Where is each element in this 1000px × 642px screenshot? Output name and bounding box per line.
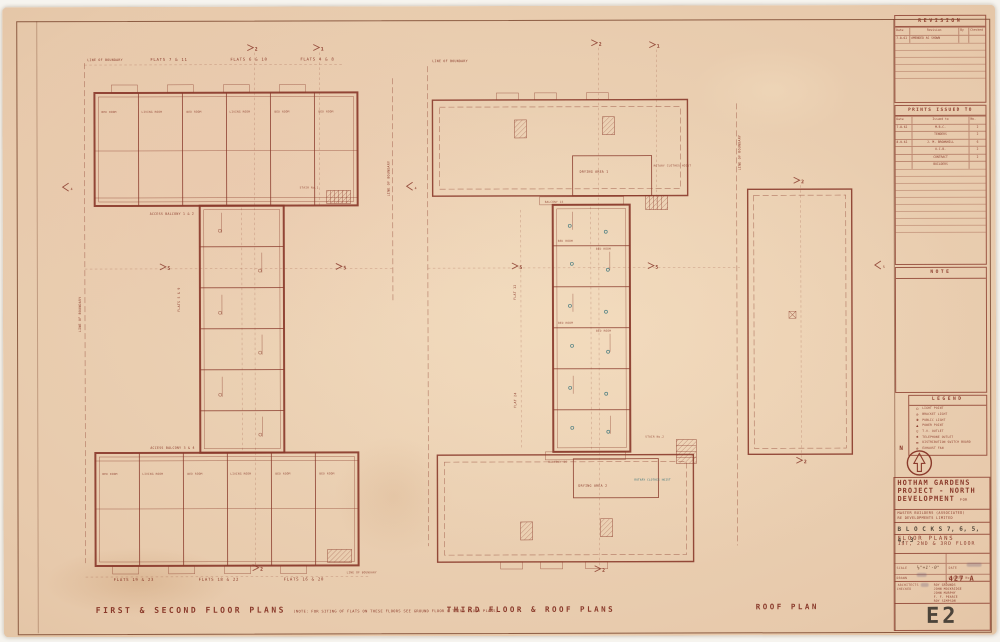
revision-col: By — [959, 28, 969, 35]
section-marker: 5 — [167, 266, 170, 272]
section-marker: 2 — [602, 568, 605, 574]
project-line: DEVELOPMENT — [897, 495, 954, 503]
section-marker: 5 — [519, 265, 522, 271]
room-label: BED ROOM — [102, 472, 117, 476]
balcony-label: BALCONY 15 — [545, 200, 564, 204]
legend-label: PUBLIC LIGHT — [922, 418, 945, 422]
stair-label: STAIR No.2 — [645, 435, 664, 439]
prints-col: Date — [895, 117, 912, 124]
legend-title: LEGEND — [909, 396, 986, 406]
prints-cell: 6 — [970, 139, 986, 146]
legend-label: POWER POINT — [922, 423, 943, 427]
room-label: BED ROOM — [187, 472, 202, 476]
room-label: BED ROOM — [274, 110, 289, 114]
flat-label: FLAT 24 — [513, 392, 517, 408]
tv-outlet-icon: ▽ — [912, 428, 922, 433]
project-line: HOTHAM GARDENS — [897, 479, 970, 487]
client-line: RE DEVELOPMENTS LIMITED — [898, 516, 953, 520]
bracket-light-icon: ⊙ — [912, 411, 922, 416]
blocks-line: B L O C K S 7, 6, 5, 4, 3 — [895, 523, 990, 535]
first-second-floor-plan: LINE OF BOUNDARY LINE OF BOUNDARY LINE O… — [77, 52, 395, 582]
section-marker: 1 — [657, 44, 660, 50]
prints-cell: 8.9.61 — [896, 139, 913, 146]
public-light-icon: ◑ — [912, 417, 922, 422]
note-box: NOTE — [895, 267, 987, 393]
power-point-icon: ▲ — [912, 423, 922, 428]
section-marker: 1 — [321, 46, 324, 52]
revision-cell: AMENDED AS SHOWN — [910, 36, 959, 43]
sheet-number: E2 — [895, 604, 990, 630]
flats-label: FLATS 4 & 8 — [300, 56, 334, 61]
plans-drawing: LINE OF BOUNDARY LINE OF BOUNDARY LINE O… — [2, 5, 997, 638]
section-marker: 2 — [260, 567, 263, 573]
date-value-smudge — [967, 562, 982, 566]
legend-label: TELEPHONE OUTLET — [922, 435, 953, 439]
prints-cell: CONTRACT — [913, 154, 970, 161]
grid-flag: 4 — [415, 186, 417, 190]
section-marker: 2 — [255, 47, 258, 53]
access-balcony-label: ACCESS BALCONY 1 & 2 — [150, 212, 194, 216]
north-label: N — [899, 445, 903, 452]
prints-cell: 2 — [970, 132, 986, 139]
drawing-no-label: DRAWING No. — [949, 576, 972, 580]
room-label: BED ROOM — [101, 110, 116, 114]
flats-label: FLATS 16 & 20 — [284, 576, 324, 581]
boundary-label: LINE OF BOUNDARY — [387, 161, 391, 197]
plan-note-teal: ROTARY CLOTHES HOIST — [634, 478, 671, 482]
subtitle-line: 1ST, 2ND & 3RD FLOOR — [898, 542, 987, 547]
section-marker: 2 — [599, 42, 602, 48]
room-label: BED ROOM — [596, 247, 611, 251]
telephone-outlet-icon: ✱ — [912, 434, 922, 439]
grid-flag: 5 — [883, 265, 885, 269]
prints-cell — [896, 147, 913, 154]
prints-cell: J. M. BROWNHILL — [913, 139, 970, 146]
revision-col: Revision — [910, 28, 959, 35]
room-label: BED ROOM — [558, 239, 573, 243]
room-label: BED ROOM — [186, 110, 201, 114]
flats-label: FLATS 19 & 23 — [114, 577, 154, 582]
drawn-value-smudge — [917, 573, 927, 577]
north-compass: N — [897, 445, 937, 477]
for-word: FOR — [960, 498, 968, 502]
prints-cell: M.B.C. — [912, 124, 969, 131]
drawing-title: FLOOR PLANS 1ST, 2ND & 3RD FLOOR — [895, 535, 990, 554]
revision-title: REVISION — [895, 16, 985, 27]
prints-col: No. — [969, 117, 985, 124]
flats-label: FLATS 6 & 10 — [230, 57, 267, 62]
flats-label: FLATS 7 & 11 — [150, 57, 187, 62]
prints-cell: 2 — [970, 154, 986, 161]
legend-label: T.V. OUTLET — [922, 429, 943, 433]
prints-cell: A.C.B. — [913, 147, 970, 154]
boundary-label: LINE OF BOUNDARY — [87, 58, 123, 62]
revision-col: Checked — [969, 28, 985, 35]
revision-table: REVISION Date Revision By Checked 7.8.61… — [894, 15, 986, 103]
empty-row — [895, 78, 985, 85]
prints-cell: 7.8.61 — [895, 124, 912, 131]
section-marker: 2 — [804, 459, 807, 465]
room-label: LIVING ROOM — [229, 110, 250, 114]
flat-label: FLAT 12 — [513, 284, 517, 300]
room-label: BED ROOM — [275, 472, 290, 476]
section-marker: 2 — [801, 179, 804, 185]
north-arrow-icon — [905, 449, 933, 477]
scale-label: SCALE — [897, 566, 908, 570]
grid-flag: 4 — [71, 187, 73, 191]
stair-label: STAIR No.1 — [300, 185, 319, 189]
project-line: PROJECT - NORTH — [897, 487, 975, 495]
boundary-label: LINE OF BOUNDARY — [738, 135, 742, 171]
legend-label: BRACKET LIGHT — [922, 412, 947, 416]
architects-row: ARCHITECTS ROY GROUNDS JOHN MOCKRIDGE JO… — [895, 582, 990, 604]
client-line: MASTER BUILDERS (ASSOCIATED) — [897, 511, 964, 515]
prints-cell: TENDERS — [913, 132, 970, 139]
title-block: HOTHAM GARDENS PROJECT - NORTH DEVELOPME… — [893, 477, 990, 631]
prints-issued-table: PRINTS ISSUED TO Date Issued to No. 7.8.… — [894, 105, 986, 265]
drying-area-label: DRYING AREA 2 — [578, 484, 607, 488]
caption-left: FIRST & SECOND FLOOR PLANS (NOTE: FOR SI… — [96, 605, 499, 615]
room-label: LIVING ROOM — [230, 472, 251, 476]
section-markers: 2 1 5 5 2 2 1 5 5 2 2 2 4 4 5 — [62, 39, 886, 575]
architect-name: ROY SIMPSON — [934, 599, 962, 603]
third-floor-roof-plan: LINE OF BOUNDARY LINE OF BOUNDARY DRYING… — [427, 47, 801, 570]
roof-plan — [748, 189, 853, 454]
boundary-label: LINE OF BOUNDARY — [347, 570, 377, 574]
paper: LINE OF BOUNDARY LINE OF BOUNDARY LINE O… — [2, 5, 997, 638]
revision-col: Date — [895, 28, 910, 35]
plan-note: ROTARY CLOTHES HOIST — [654, 163, 692, 167]
room-label: BED ROOM — [596, 329, 611, 333]
revision-cell — [969, 36, 985, 43]
access-balcony-label: ACCESS BALCONY 3 & 4 — [150, 446, 194, 450]
caption-left-title: FIRST & SECOND FLOOR PLANS — [96, 606, 286, 615]
caption-right: ROOF PLAN — [756, 602, 819, 611]
prints-cell: BUILDERS — [913, 162, 970, 169]
prints-title: PRINTS ISSUED TO — [895, 106, 985, 116]
boundary-label: LINE OF BOUNDARY — [432, 59, 468, 63]
caption-middle: THIRD FLOOR & ROOF PLANS — [447, 605, 615, 614]
boundary-label: LINE OF BOUNDARY — [78, 297, 82, 333]
date-label: DATE — [949, 566, 957, 570]
prints-cell — [896, 154, 913, 161]
scanned-drawing-sheet: LINE OF BOUNDARY LINE OF BOUNDARY LINE O… — [0, 0, 1000, 642]
prints-cell — [896, 162, 913, 169]
room-label: BED ROOM — [319, 471, 334, 475]
prints-cell — [896, 132, 913, 139]
section-marker: 5 — [343, 265, 346, 271]
prints-cell — [970, 162, 986, 169]
legend-label: DISTRIBUTION SWITCH BOARD — [922, 440, 971, 444]
room-label: BED ROOM — [318, 109, 333, 113]
drying-area-label: DRYING AREA 1 — [580, 170, 609, 174]
room-label: BED ROOM — [558, 321, 573, 325]
flats-spine-label: FLATS 5 & 9 — [177, 287, 181, 311]
room-label: LIVING ROOM — [142, 472, 163, 476]
prints-col: Issued to — [912, 117, 969, 124]
revision-cell: 7.8.61 — [895, 36, 910, 43]
drawn-label: DRAWN — [897, 576, 908, 580]
flats-label: FLATS 18 & 22 — [199, 577, 239, 582]
note-title: NOTE — [896, 268, 986, 279]
legend-label: LIGHT POINT — [922, 406, 943, 410]
light-point-icon: ○ — [912, 406, 922, 411]
project-name: HOTHAM GARDENS PROJECT - NORTH DEVELOPME… — [894, 478, 989, 510]
section-marker: 5 — [655, 265, 658, 271]
prints-cell: 2 — [969, 124, 985, 131]
revision-cell — [959, 36, 969, 43]
empty-row — [896, 231, 986, 238]
client-name: MASTER BUILDERS (ASSOCIATED) RE DEVELOPM… — [894, 510, 989, 523]
room-label: LIVING ROOM — [141, 110, 162, 114]
prints-cell: 2 — [970, 147, 986, 154]
fields-grid: SCALE ⅛"=1'-0" DATE DRAWN DRAWING No. CH… — [895, 554, 990, 582]
architects-label: ARCHITECTS — [898, 583, 934, 602]
